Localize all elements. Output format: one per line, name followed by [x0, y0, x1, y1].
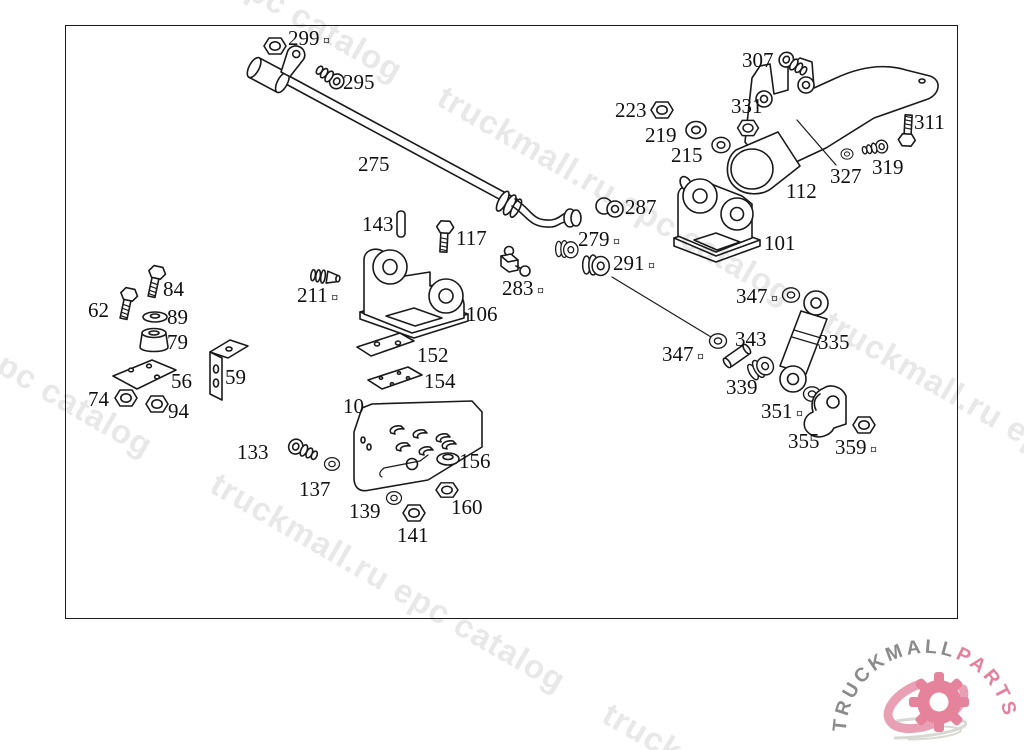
part-label-223: 223: [615, 100, 647, 121]
footnote-marker: ¤: [694, 350, 705, 365]
part-label-215: 215: [671, 145, 703, 166]
footnote-marker: ¤: [328, 291, 339, 306]
part-label-355: 355: [788, 431, 820, 452]
footnote-marker: ¤: [867, 443, 878, 458]
part-label-112: 112: [786, 181, 817, 202]
part-label-94: 94: [168, 401, 189, 422]
footnote-marker: ¤: [645, 259, 656, 274]
part-label-56: 56: [171, 371, 192, 392]
part-label-351: 351 ¤: [761, 401, 803, 422]
part-label-347: 347 ¤: [736, 286, 778, 307]
part-label-106: 106: [466, 304, 498, 325]
footnote-marker: ¤: [793, 407, 804, 422]
part-label-84: 84: [163, 279, 184, 300]
logo-brand-secondary: PARTS: [953, 643, 1022, 721]
part-label-291: 291 ¤: [613, 253, 655, 274]
part-label-343: 343: [735, 329, 767, 350]
parts-diagram-page: truckmall.ru epc catalog truckmall.ru ep…: [0, 0, 1024, 750]
part-label-154: 154: [424, 371, 456, 392]
part-label-283: 283 ¤: [502, 278, 544, 299]
part-label-339: 339: [726, 377, 758, 398]
footnote-marker: ¤: [768, 292, 779, 307]
part-label-74: 74: [88, 389, 109, 410]
part-label-279: 279 ¤: [578, 229, 620, 250]
part-label-133: 133: [237, 442, 269, 463]
footnote-marker: ¤: [610, 235, 621, 250]
part-label-137: 137: [299, 479, 331, 500]
part-label-299: 299 ¤: [288, 28, 330, 49]
part-label-347: 347 ¤: [662, 344, 704, 365]
part-label-117: 117: [456, 228, 487, 249]
part-label-160: 160: [451, 497, 483, 518]
truckmall-parts-logo: TRUCKMALLPARTS: [826, 636, 1024, 748]
part-label-319: 319: [872, 157, 904, 178]
part-label-89: 89: [167, 307, 188, 328]
part-label-156: 156: [459, 451, 491, 472]
part-label-211: 211 ¤: [297, 285, 338, 306]
footnote-marker: ¤: [534, 284, 545, 299]
part-label-331: 331: [731, 96, 763, 117]
part-label-139: 139: [349, 501, 381, 522]
part-label-62: 62: [88, 300, 109, 321]
part-label-152: 152: [417, 345, 449, 366]
gear-icon: [909, 672, 969, 732]
part-label-307: 307: [742, 50, 774, 71]
part-label-327: 327: [830, 166, 862, 187]
part-label-275: 275: [358, 154, 390, 175]
part-label-359: 359 ¤: [835, 437, 877, 458]
part-label-295: 295: [343, 72, 375, 93]
part-label-101: 101: [764, 233, 796, 254]
footnote-marker: ¤: [320, 34, 331, 49]
part-label-59: 59: [225, 367, 246, 388]
part-label-10: 10: [343, 396, 364, 417]
part-label-311: 311: [914, 112, 945, 133]
part-label-79: 79: [167, 332, 188, 353]
part-label-143: 143: [362, 214, 394, 235]
part-label-141: 141: [397, 525, 429, 546]
part-label-335: 335: [818, 332, 850, 353]
part-label-287: 287: [625, 197, 657, 218]
